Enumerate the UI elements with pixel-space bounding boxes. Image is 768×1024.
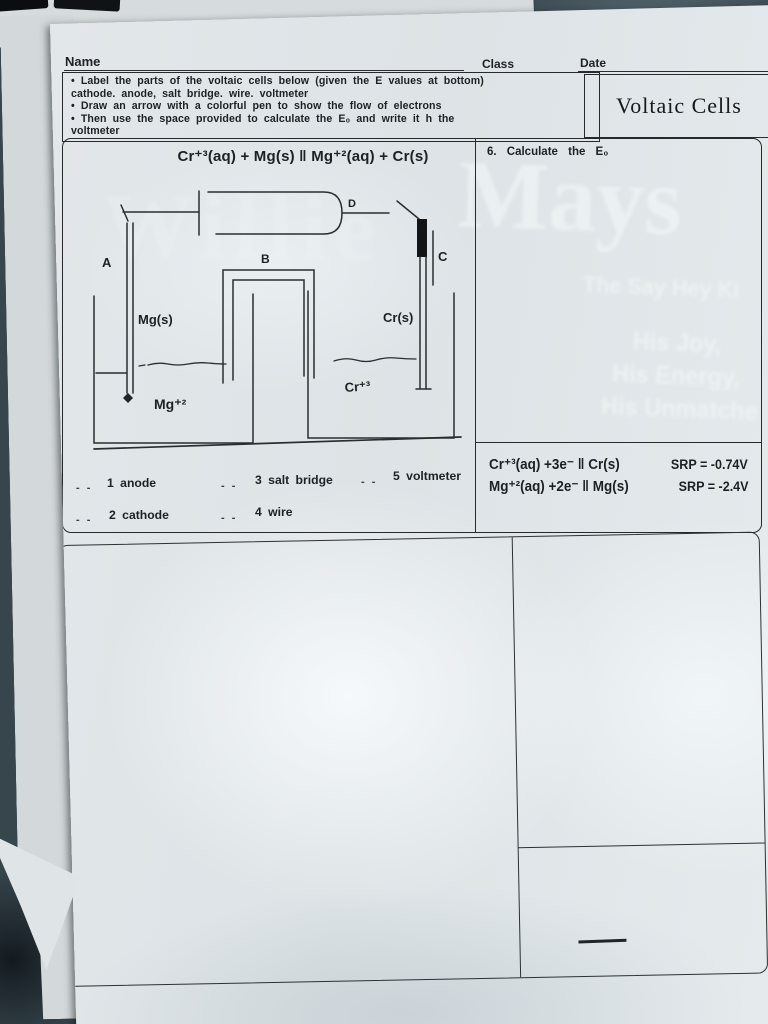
date-blank-line [578, 71, 768, 72]
answer-blank-4: - - [221, 512, 237, 524]
instruction-line-3: • Draw an arrow with a colorful pen to s… [71, 100, 593, 113]
word-bank-item-voltmeter: 5 voltmeter [393, 469, 461, 483]
instruction-line-5: voltmeter [71, 125, 593, 138]
switch-mark [397, 201, 419, 219]
salt-bridge-inner [233, 280, 304, 380]
word-bank-item-wire: 4 wire [255, 505, 293, 519]
srp-value-mg: SRP = -2.4V [678, 479, 748, 494]
ion-diamond [123, 393, 133, 403]
half-reaction-mg: Mg⁺²(aq) +2e⁻ ‖ Mg(s) [489, 479, 663, 495]
problem-1-panel: Cr⁺³(aq) + Mg(s) ‖ Mg⁺²(aq) + Cr(s) [62, 138, 762, 533]
answer-blank-3: - - [221, 480, 237, 492]
right-electrode [416, 257, 431, 389]
srp-value-cr: SRP = -0.74V [671, 457, 748, 472]
voltaic-cell-diagram: A B C D Mg(s) Cr(s) Mg⁺² Cr⁺³ [86, 183, 466, 455]
cell-notation-equation: Cr⁺³(aq) + Mg(s) ‖ Mg⁺²(aq) + Cr(s) [143, 147, 463, 165]
water-line-right [334, 358, 416, 362]
date-label: Date [580, 56, 606, 70]
instruction-line-2: cathode. anode, salt bridge. wire. voltm… [71, 88, 593, 101]
worksheet-title-box: Voltaic Cells [584, 74, 768, 138]
left-electrode-clip [121, 205, 128, 221]
problem-2-panel [58, 532, 768, 987]
answer-blank-2: - - [76, 514, 92, 526]
name-label: Name [65, 54, 100, 69]
answer-blank-5: - - [361, 476, 377, 488]
instruction-line-4: • Then use the space provided to calcula… [71, 113, 593, 126]
right-solution-label: Cr⁺³ [344, 378, 371, 395]
answer-blank-1: - - [76, 482, 92, 494]
right-electrode-label: Cr(s) [383, 310, 413, 325]
instruction-line-1: • Label the parts of the voltaic cells b… [71, 75, 593, 88]
diagram-label-c: C [438, 249, 448, 264]
panel-divider-2 [512, 537, 521, 977]
salt-bridge-outer [223, 270, 314, 383]
word-bank-item-salt-bridge: 3 salt bridge [255, 473, 333, 487]
half-reaction-cr: Cr⁺³(aq) +3e⁻ ‖ Cr(s) [489, 457, 656, 473]
left-solution-label: Mg⁺² [154, 396, 187, 412]
instructions-box: • Label the parts of the voltaic cells b… [62, 72, 600, 142]
right-beaker [308, 291, 454, 438]
left-electrode-label: Mg(s) [138, 312, 173, 327]
half-reaction-row-cr: Cr⁺³(aq) +3e⁻ ‖ Cr(s) SRP = -0.74V [489, 457, 751, 473]
class-label: Class [482, 57, 514, 71]
reference-half-reactions: Cr⁺³(aq) +3e⁻ ‖ Cr(s) SRP = -0.74V Mg⁺²(… [475, 442, 761, 532]
right-column-rule [518, 843, 765, 849]
worksheet-paper: Willie Mays The Say Hey Ki His Joy, His … [50, 5, 768, 1024]
name-blank-line [64, 70, 464, 71]
worksheet-title: Voltaic Cells [616, 93, 742, 119]
left-beaker [94, 294, 253, 443]
voltmeter-symbol [208, 192, 342, 234]
diagram-label-a: A [102, 255, 112, 270]
half-reaction-row-mg: Mg⁺²(aq) +2e⁻ ‖ Mg(s) SRP = -2.4V [489, 479, 751, 495]
pen-mark [578, 939, 626, 943]
word-bank-item-anode: 1 anode [107, 476, 156, 490]
right-electrode-terminal [417, 219, 427, 257]
diagram-label-d: D [348, 198, 356, 210]
photo-background: Willie Mays The Say Hey Ki His Joy, His … [0, 0, 768, 1024]
question-6-label: 6. Calculate the E₀ [487, 146, 608, 158]
diagram-label-b: B [261, 252, 270, 266]
left-electrode [127, 223, 133, 393]
water-line-left [139, 363, 226, 366]
word-bank-item-cathode: 2 cathode [109, 508, 169, 522]
